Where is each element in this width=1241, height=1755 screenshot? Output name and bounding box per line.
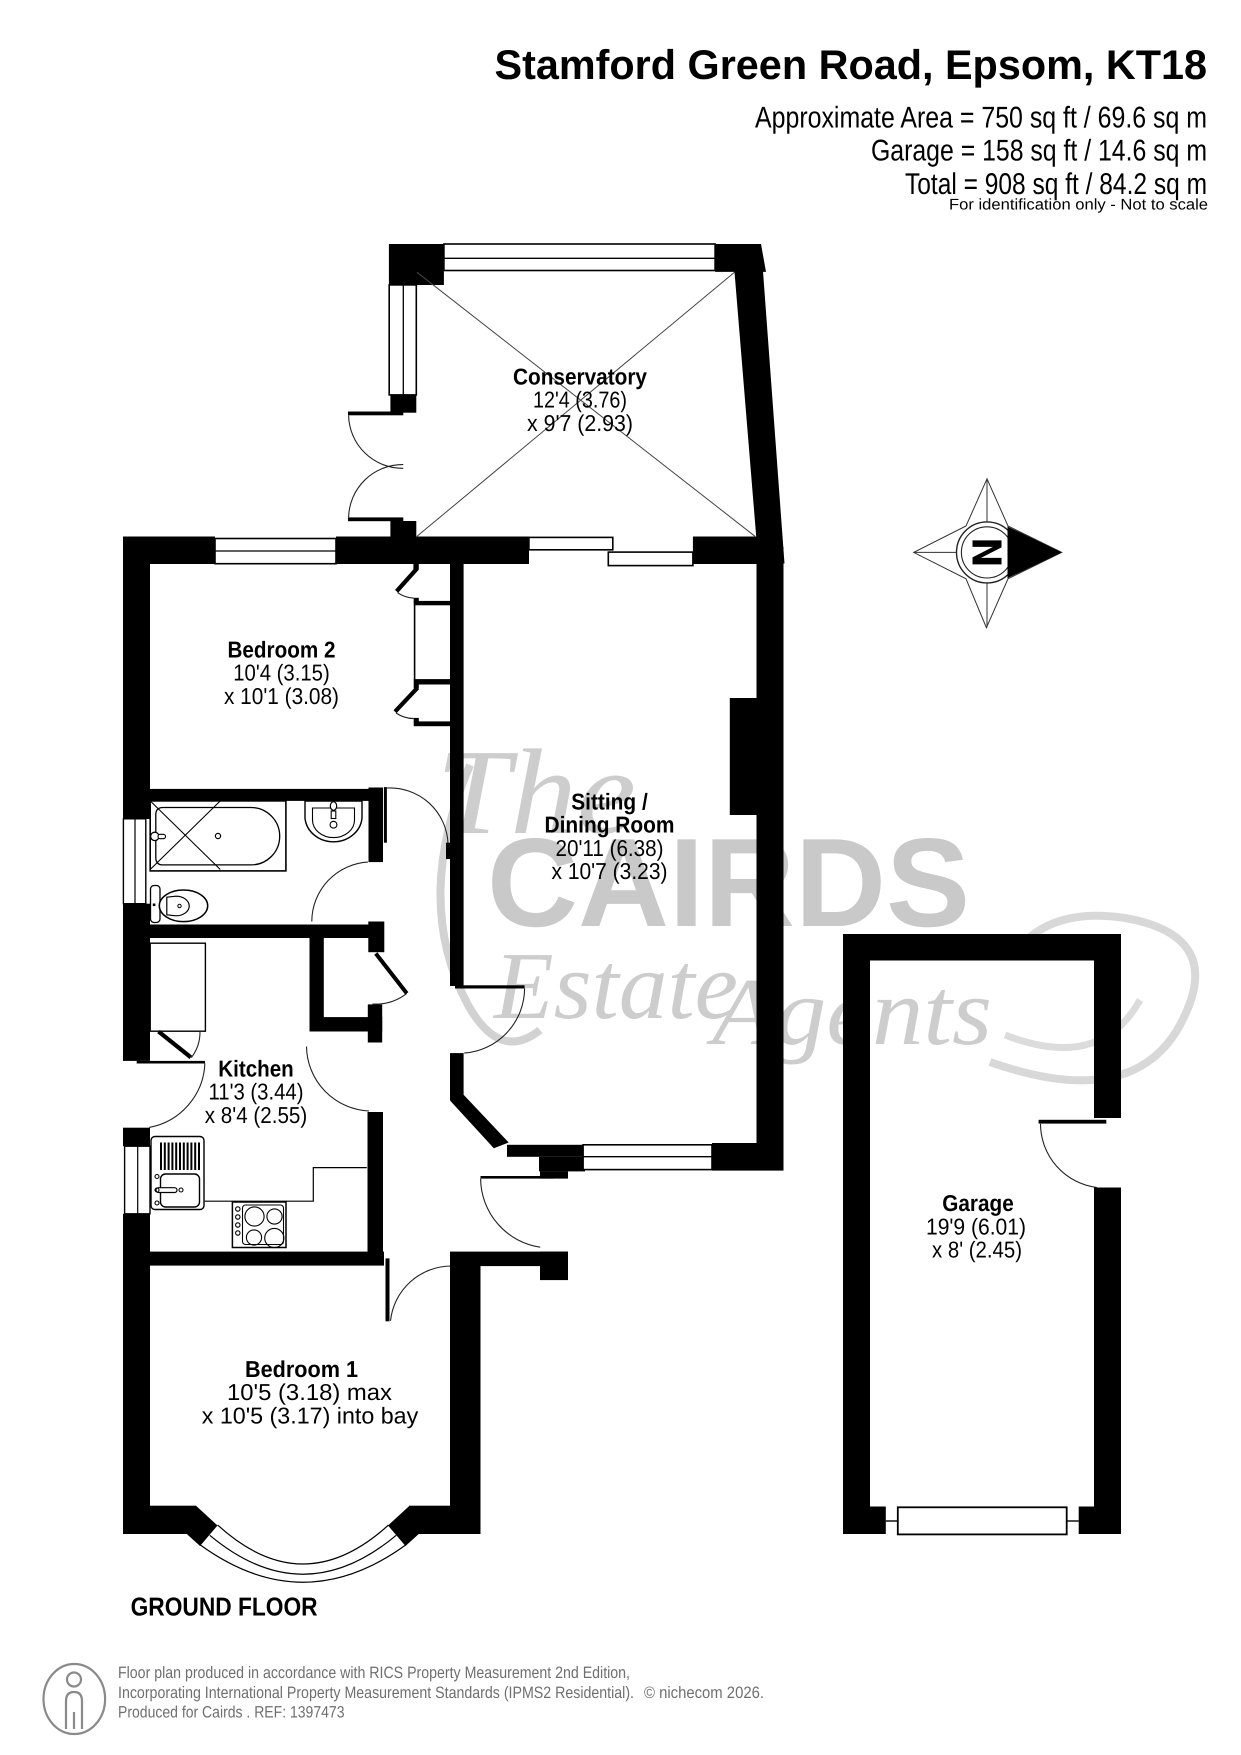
svg-text:x 10'7 (3.23): x 10'7 (3.23) — [552, 858, 668, 884]
svg-text:Dining Room: Dining Room — [545, 812, 675, 838]
svg-text:Incorporating International Pr: Incorporating International Property Mea… — [118, 1684, 634, 1702]
svg-text:Approximate Area = 750 sq ft /: Approximate Area = 750 sq ft / 69.6 sq m — [755, 101, 1207, 134]
svg-text:x 10'1 (3.08): x 10'1 (3.08) — [224, 683, 339, 709]
svg-text:10'5 (3.18) max: 10'5 (3.18) max — [227, 1379, 393, 1405]
svg-text:19'9 (6.01): 19'9 (6.01) — [926, 1213, 1026, 1239]
svg-text:Garage: Garage — [942, 1190, 1014, 1216]
svg-text:20'11 (6.38): 20'11 (6.38) — [556, 835, 664, 861]
svg-text:Estate: Estate — [492, 932, 738, 1039]
svg-text:© nichecom 2026.: © nichecom 2026. — [644, 1684, 764, 1702]
svg-text:x 8'4 (2.55): x 8'4 (2.55) — [205, 1102, 308, 1128]
svg-text:Produced for Cairds . REF:: Produced for Cairds . REF: 1397473 — [118, 1704, 345, 1722]
svg-text:12'4 (3.76): 12'4 (3.76) — [533, 387, 627, 413]
svg-text:x 8' (2.45): x 8' (2.45) — [932, 1237, 1022, 1263]
svg-text:Bedroom 2: Bedroom 2 — [228, 636, 336, 662]
svg-text:Stamford Green Road, Epsom, KT: Stamford Green Road, Epsom, KT18 — [495, 41, 1208, 88]
svg-text:Kitchen: Kitchen — [218, 1055, 294, 1081]
svg-text:GROUND FLOOR: GROUND FLOOR — [131, 1592, 318, 1622]
svg-text:Floor plan produced in accorda: Floor plan produced in accordance with R… — [118, 1664, 630, 1682]
svg-text:Sitting /: Sitting / — [571, 788, 648, 814]
svg-text:For identification only - Not: For identification only - Not to scale — [949, 197, 1208, 214]
svg-text:Garage = 158 sq ft / 14.6 sq m: Garage = 158 sq ft / 14.6 sq m — [871, 135, 1207, 168]
svg-text:x 10'5 (3.17) into bay: x 10'5 (3.17) into bay — [202, 1402, 419, 1428]
svg-text:10'4 (3.15): 10'4 (3.15) — [233, 660, 330, 686]
svg-text:11'3 (3.44): 11'3 (3.44) — [209, 1079, 304, 1105]
svg-text:Bedroom 1: Bedroom 1 — [245, 1356, 358, 1382]
svg-text:Conservatory: Conservatory — [513, 363, 647, 389]
svg-text:x 9'7 (2.93): x 9'7 (2.93) — [527, 410, 633, 436]
